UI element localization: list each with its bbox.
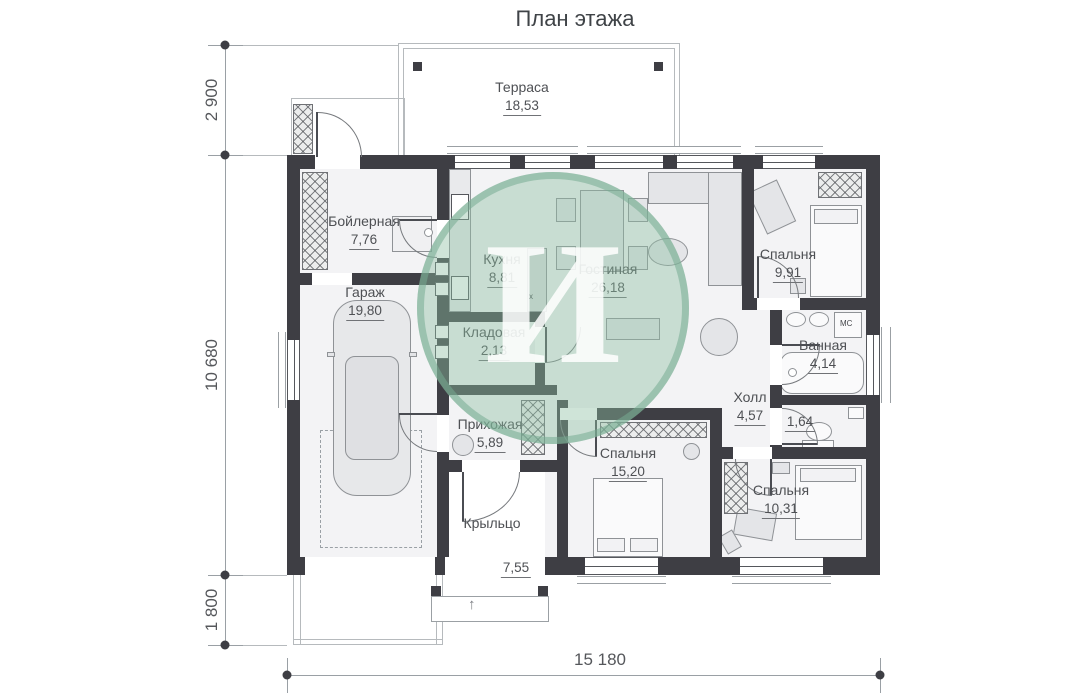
room-label-bathroom: Ванная 4,14 bbox=[799, 336, 847, 374]
room-area: 2,13 bbox=[479, 342, 509, 361]
door-gap-bedroom3 bbox=[733, 447, 772, 459]
bathroom-sink bbox=[809, 312, 829, 327]
dimension-marker bbox=[876, 671, 885, 680]
window-garage bbox=[287, 340, 300, 400]
steps-up-arrow: ↑ bbox=[468, 596, 476, 613]
driveway-line bbox=[293, 639, 443, 640]
entry-steps bbox=[293, 104, 313, 154]
porch-post bbox=[431, 586, 441, 596]
dimension-label-15180: 15 180 bbox=[574, 650, 626, 670]
room-area: 15,20 bbox=[609, 463, 647, 482]
room-area: 10,31 bbox=[762, 500, 800, 519]
room-label-bedroom1: Спальня 9,91 bbox=[760, 245, 816, 283]
bedroom2-pouf bbox=[683, 443, 700, 460]
window-sill bbox=[517, 146, 578, 154]
room-label-wc: 1,64 bbox=[785, 412, 815, 432]
dining-chair bbox=[556, 198, 576, 222]
room-area: 5,89 bbox=[475, 434, 505, 453]
window bbox=[595, 155, 663, 169]
window bbox=[740, 557, 823, 575]
room-area: 4,57 bbox=[735, 407, 765, 426]
window-sill bbox=[881, 327, 891, 403]
room-area: 7,76 bbox=[349, 231, 379, 250]
extension-line bbox=[226, 45, 398, 46]
room-name: Кухня bbox=[483, 250, 520, 268]
terrace-post bbox=[413, 62, 422, 71]
window bbox=[585, 557, 658, 575]
room-name: Гараж bbox=[345, 283, 385, 301]
room-area: 1,64 bbox=[785, 413, 815, 432]
room-name: Прихожая bbox=[458, 415, 523, 433]
window-sill bbox=[577, 576, 666, 584]
room-name: Кладовая bbox=[463, 323, 526, 341]
room-area: 7,55 bbox=[501, 559, 531, 578]
dining-chair bbox=[556, 246, 576, 270]
wall-bedroom1-left bbox=[742, 169, 754, 310]
window-bathroom bbox=[866, 335, 880, 395]
door-gap-bedroom1 bbox=[757, 298, 800, 310]
room-label-bedroom3: Спальня 10,31 bbox=[753, 481, 809, 519]
room-name: Спальня bbox=[600, 444, 656, 462]
room-area: 9,91 bbox=[773, 264, 803, 283]
dimension-label-2900: 2 900 bbox=[202, 79, 222, 122]
dining-chair bbox=[628, 198, 648, 222]
room-name: Гостиная bbox=[579, 260, 638, 278]
door-gap-bathroom bbox=[770, 345, 782, 385]
room-name: Холл bbox=[734, 388, 767, 406]
room-name: Ванная bbox=[799, 336, 847, 354]
washing-machine-label: МС bbox=[840, 319, 852, 328]
room-area: 4,14 bbox=[808, 355, 838, 374]
bedroom1-pillow bbox=[814, 209, 858, 224]
door-gap-garage-hallway bbox=[437, 415, 449, 452]
meter-box bbox=[435, 325, 449, 339]
room-label-porch: Крыльцо bbox=[463, 514, 520, 532]
bathroom-sink bbox=[786, 312, 806, 327]
wall-bedroom2-bedroom3 bbox=[710, 408, 722, 557]
room-label-garage: Гараж 19,80 bbox=[345, 283, 385, 321]
room-name: Бойлерная bbox=[328, 212, 400, 230]
room-area: 18,53 bbox=[503, 97, 541, 116]
dimension-label-1800: 1 800 bbox=[202, 589, 222, 632]
boiler-shaft bbox=[302, 172, 328, 270]
room-area: 19,80 bbox=[346, 302, 384, 321]
door-gap-storage bbox=[535, 327, 545, 363]
room-name: Спальня bbox=[753, 481, 809, 499]
door-gap-entry-canopy bbox=[315, 155, 360, 169]
room-label-storage: Кладовая 2,13 bbox=[463, 323, 526, 361]
room-label-porch-area: 7,55 bbox=[501, 558, 531, 578]
dimension-marker bbox=[221, 571, 230, 580]
bedroom2-pillow bbox=[597, 538, 625, 552]
garage-door-gap bbox=[305, 557, 435, 575]
window-sill bbox=[669, 146, 741, 154]
room-label-kitchen: Кухня 8,81 bbox=[483, 250, 520, 288]
window bbox=[763, 155, 815, 169]
window bbox=[455, 155, 510, 169]
dimension-line-bottom bbox=[287, 675, 880, 676]
room-name: Спальня bbox=[760, 245, 816, 263]
window bbox=[525, 155, 570, 169]
bedroom3-pillow bbox=[800, 468, 856, 482]
driveway-outline bbox=[293, 575, 443, 645]
bedroom2-wardrobe bbox=[600, 422, 707, 438]
dimension-marker bbox=[221, 641, 230, 650]
porch-steps bbox=[431, 596, 549, 622]
wc-sink bbox=[848, 407, 864, 419]
meter-box bbox=[435, 262, 449, 276]
meter-box bbox=[435, 282, 449, 296]
stove bbox=[451, 194, 469, 220]
room-label-hall: Холл 4,57 bbox=[734, 388, 767, 426]
porch-post bbox=[538, 586, 548, 596]
window-sill bbox=[587, 146, 671, 154]
wall-bath-wc bbox=[782, 395, 866, 405]
dimension-marker bbox=[221, 151, 230, 160]
driveway-rail bbox=[300, 575, 301, 645]
tv-stand bbox=[606, 318, 660, 340]
window bbox=[677, 155, 733, 169]
car-mirror bbox=[409, 352, 417, 357]
coffee-table bbox=[648, 238, 688, 266]
sofa bbox=[708, 172, 742, 286]
bedroom3-nightstand bbox=[772, 462, 790, 474]
bedroom1-wardrobe bbox=[818, 172, 862, 198]
bar-stool-mark: х bbox=[529, 292, 533, 301]
room-area: 26,18 bbox=[589, 279, 627, 298]
meter-box bbox=[435, 345, 449, 359]
room-label-boiler: Бойлерная 7,76 bbox=[328, 212, 400, 250]
terrace-post bbox=[654, 62, 663, 71]
room-area: 8,81 bbox=[487, 269, 517, 288]
room-label-hallway: Прихожая 5,89 bbox=[458, 415, 523, 453]
window-sill bbox=[447, 146, 518, 154]
dimension-line-left bbox=[225, 45, 226, 645]
door-gap-boiler bbox=[437, 220, 449, 258]
dimension-marker bbox=[283, 671, 292, 680]
floor-plan-canvas: План этажа ↑ bbox=[0, 0, 1084, 700]
room-label-terrace: Терраса 18,53 bbox=[495, 78, 549, 116]
hallway-wardrobe bbox=[521, 400, 545, 455]
room-label-living: Гостиная 26,18 bbox=[579, 260, 638, 298]
room-name: Крыльцо bbox=[463, 514, 520, 532]
room-label-bedroom2: Спальня 15,20 bbox=[600, 444, 656, 482]
door-gap-bedroom2 bbox=[560, 408, 597, 420]
door-gap-wc bbox=[770, 408, 782, 445]
page-title: План этажа bbox=[516, 6, 635, 32]
bar-counter bbox=[527, 248, 547, 312]
window-sill bbox=[755, 146, 823, 154]
bedroom2-pillow bbox=[630, 538, 658, 552]
car-mirror bbox=[327, 352, 335, 357]
dimension-marker bbox=[221, 41, 230, 50]
car-roof bbox=[345, 356, 399, 460]
armchair bbox=[700, 318, 738, 356]
window-sill bbox=[732, 576, 831, 584]
room-name: Терраса bbox=[495, 78, 549, 96]
wall-storage-top bbox=[449, 312, 545, 322]
door-gap-porch bbox=[462, 460, 520, 472]
window-sill bbox=[278, 332, 286, 408]
kitchen-sink bbox=[451, 276, 469, 300]
dimension-label-10680: 10 680 bbox=[202, 339, 222, 391]
